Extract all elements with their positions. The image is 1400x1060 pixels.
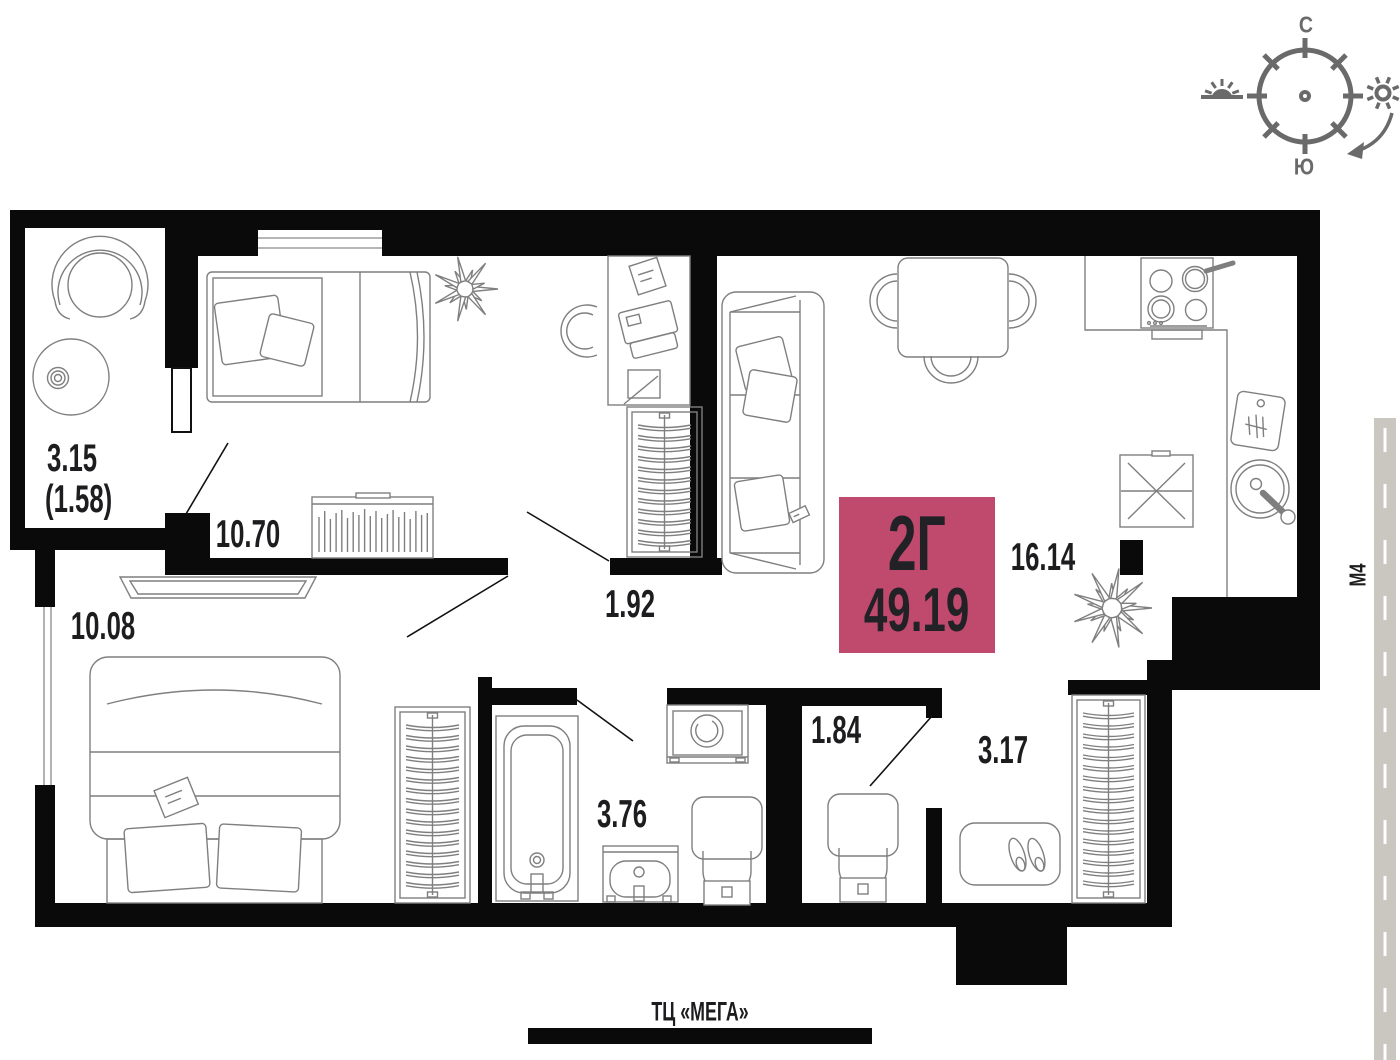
compass-north-label: С bbox=[1299, 12, 1313, 39]
highway-label: М4 bbox=[1345, 563, 1372, 586]
cutting-board bbox=[1230, 391, 1286, 452]
bedroom-top-furniture bbox=[207, 256, 702, 558]
room-area-wc: 1.84 bbox=[811, 709, 861, 753]
mall-label: ТЦ «МЕГА» bbox=[651, 997, 748, 1028]
toilet bbox=[692, 797, 762, 905]
bedroom-left-furniture bbox=[90, 577, 470, 903]
sofa bbox=[722, 292, 824, 573]
room-area-bathroom: 3.76 bbox=[597, 793, 647, 837]
floor-plan-page: 3.15 (1.58) 10.70 10.08 1.92 16.14 3.76 … bbox=[0, 0, 1400, 1060]
compass-rose-icon bbox=[1201, 38, 1399, 159]
kitchen-furniture bbox=[1085, 256, 1295, 597]
room-area-balcony-coef: (1.58) bbox=[45, 478, 112, 522]
balcony-table bbox=[33, 339, 109, 415]
chair bbox=[1009, 274, 1036, 328]
wardrobe bbox=[395, 707, 470, 903]
dining-table bbox=[898, 258, 1008, 357]
plant bbox=[435, 257, 498, 321]
bathroom-sink bbox=[603, 846, 678, 902]
balcony-door-swing bbox=[186, 443, 228, 514]
shoes bbox=[1006, 831, 1049, 879]
room-area-balcony: 3.15 bbox=[47, 437, 97, 481]
bedroom-left-door-swing bbox=[407, 576, 508, 637]
plan-badge: 2Г 49.19 bbox=[839, 497, 995, 653]
wc-door-swing bbox=[870, 716, 932, 786]
tv bbox=[120, 577, 316, 598]
plant bbox=[1074, 569, 1152, 648]
entry-hall-furniture bbox=[960, 695, 1145, 903]
room-area-kitchen: 16.14 bbox=[1011, 536, 1075, 580]
bedroom-top-door-swing bbox=[527, 512, 609, 561]
laptop bbox=[618, 300, 682, 360]
chair bbox=[924, 356, 978, 383]
washing-machine bbox=[667, 705, 748, 763]
bathtub bbox=[496, 716, 578, 901]
room-area-entry-hall: 3.17 bbox=[978, 729, 1028, 773]
compass-south-label: Ю bbox=[1294, 154, 1314, 181]
rotation-arrow bbox=[1360, 113, 1392, 150]
sunrise-icon bbox=[1201, 79, 1243, 97]
highway-road bbox=[1374, 418, 1396, 1060]
toilet bbox=[828, 794, 898, 902]
room-area-hallway: 1.92 bbox=[605, 583, 655, 627]
balcony-door-leaf bbox=[172, 368, 191, 432]
chair bbox=[870, 274, 897, 328]
unit-area-label: 49.19 bbox=[864, 580, 970, 642]
sun-icon bbox=[1367, 77, 1398, 108]
wardrobe bbox=[1072, 695, 1145, 903]
double-bed bbox=[90, 657, 340, 839]
floor-plan-drawing bbox=[0, 0, 1400, 1060]
unit-type-label: 2Г bbox=[888, 508, 946, 580]
bathroom-door-swing bbox=[577, 700, 633, 741]
room-area-bedroom-left: 10.08 bbox=[71, 605, 135, 649]
wc-furniture bbox=[828, 794, 898, 902]
mall-road-bar bbox=[528, 1028, 872, 1044]
room-area-bedroom-top: 10.70 bbox=[216, 513, 280, 557]
balcony-furniture bbox=[33, 236, 148, 415]
entrance-step bbox=[956, 927, 1067, 985]
